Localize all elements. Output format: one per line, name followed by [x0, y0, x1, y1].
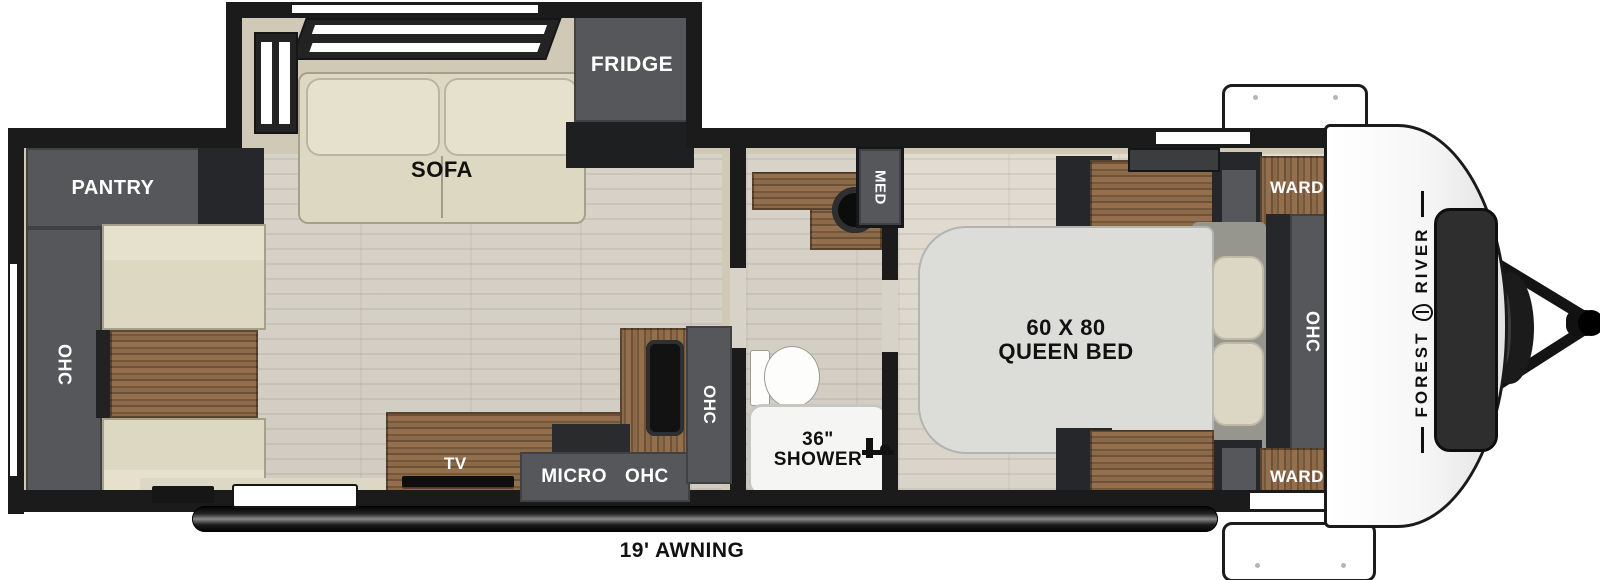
entry-step-front-door: [1222, 522, 1376, 580]
entry-door-opening: [1250, 493, 1330, 509]
awning-label-wrap: 19' AWNING: [482, 538, 882, 564]
fridge-cabinet: FRIDGE: [574, 8, 690, 122]
slideout-right-wall: [686, 2, 702, 148]
kitchen-ohc-label: OHC: [625, 466, 669, 488]
step-rivet-icon: [1333, 95, 1338, 100]
sofa-back-cushion: [444, 78, 578, 156]
cooktop: [152, 486, 214, 503]
bedroom-ohc-label: OHC: [1302, 311, 1323, 353]
sofa-back-cushion: [306, 78, 440, 156]
micro-ohc-cabinet: MICRO OHC: [520, 452, 690, 502]
rear-ohc-label: OHC: [54, 344, 75, 386]
bedroom-top-window: [1156, 132, 1250, 144]
bed-size-label: 60 X 80: [1026, 316, 1105, 340]
skylight-window: [293, 20, 559, 58]
brand-rule: [1421, 191, 1424, 217]
rv-floorplan: PANTRY OHC SOFA FRIDGE TV MICRO OHC: [0, 0, 1600, 580]
sofa-label: SOFA: [411, 157, 473, 183]
step-rivet-icon: [1253, 95, 1258, 100]
step-rivet-icon: [1341, 563, 1346, 568]
skylight-pane: [309, 43, 540, 52]
rear-ohc-cabinet: OHC: [26, 228, 102, 502]
kitchen-sink: [232, 484, 358, 508]
bedroom-ohc-frame: [1266, 214, 1292, 450]
ward-rear-label: WARD: [1270, 178, 1324, 198]
rear-window: [10, 264, 17, 476]
window-pane: [261, 42, 272, 124]
brand-rule: [1421, 427, 1424, 453]
galley-sink: [646, 340, 684, 436]
sofa: SOFA: [298, 72, 586, 224]
bench-back: [104, 226, 264, 260]
kitchen-ohc-tall-cabinet: OHC: [686, 326, 732, 484]
skylight-pane: [312, 25, 547, 34]
fridge-counter: [566, 122, 694, 168]
queen-bed: 60 X 80 QUEEN BED: [918, 226, 1214, 454]
awning-roller: [192, 506, 1218, 532]
top-wall-rear: [8, 128, 240, 148]
medicine-cabinet: MED: [856, 146, 904, 228]
awning-label: 19' AWNING: [620, 539, 745, 563]
kitchen-ohc-tall-label: OHC: [699, 385, 719, 424]
pantry-cabinet: PANTRY: [26, 148, 200, 228]
front-cap-brand: FOREST RIVER: [1407, 162, 1437, 482]
med-label: MED: [872, 170, 889, 205]
pillow: [1212, 342, 1264, 426]
pantry-label: PANTRY: [72, 177, 155, 200]
bedroom-door-opening: [882, 280, 898, 352]
dinette-table: [110, 330, 258, 418]
bedroom-window: [1128, 148, 1220, 172]
brand-first-label: FOREST: [1412, 331, 1432, 418]
window-pane: [279, 42, 290, 124]
ward-front-label: WARD: [1270, 467, 1324, 487]
shower-label: SHOWER: [774, 450, 863, 470]
tv-label: TV: [444, 454, 467, 474]
tv-screen: [402, 476, 514, 487]
pillow: [1212, 256, 1264, 340]
slideout-end-window: [256, 34, 296, 132]
shower-size-label: 36": [802, 430, 834, 450]
micro-label: MICRO: [541, 466, 607, 488]
forest-river-logo-icon: [1412, 304, 1433, 321]
step-rivet-icon: [1255, 563, 1260, 568]
slideout-left-wall: [226, 2, 242, 148]
front-cap-window: [1434, 208, 1498, 452]
shower-faucet-icon: [858, 436, 898, 466]
dinette-bench-rear-top: [102, 224, 266, 330]
toilet-bowl: [764, 346, 820, 408]
brand-last-label: RIVER: [1412, 227, 1432, 294]
slideout-top-trim: [292, 5, 538, 13]
dinette-table-edge: [96, 330, 110, 418]
bath-door-opening: [730, 268, 746, 348]
microwave: [552, 424, 630, 454]
bed-type-label: QUEEN BED: [998, 340, 1133, 364]
fridge-label: FRIDGE: [591, 53, 673, 77]
nightstand-front: [1090, 430, 1214, 494]
